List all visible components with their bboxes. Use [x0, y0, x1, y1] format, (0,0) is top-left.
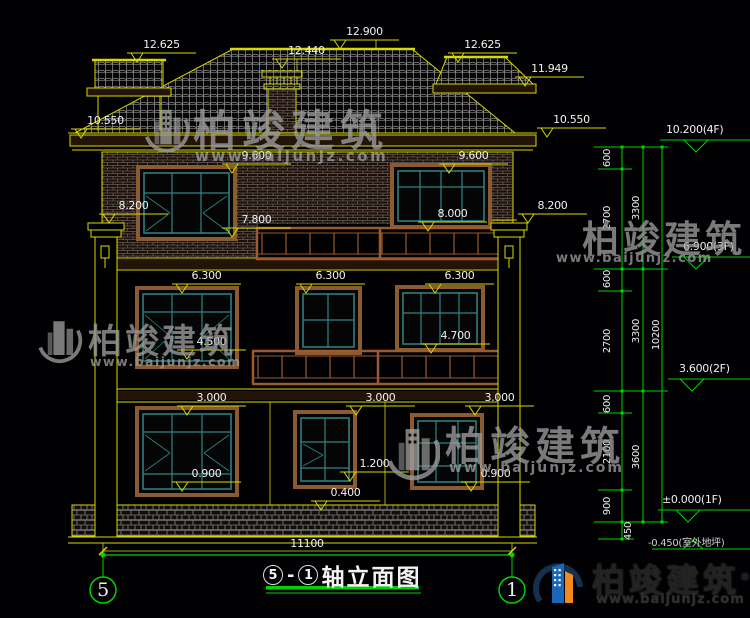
dim-text: 3600 — [631, 429, 643, 485]
title-axis-start: 5 — [263, 565, 283, 585]
title-dash: - — [287, 565, 294, 586]
dim-text: 600 — [602, 130, 614, 186]
title-axis-end: 1 — [298, 565, 318, 585]
elevation-flag: 8.000 — [418, 207, 487, 220]
elevation-flag: 6.300 — [296, 269, 365, 282]
watermark-url: www.baijunjz.com — [449, 460, 624, 476]
watermark: 柏竣建筑 www.baijunjz.com — [548, 205, 750, 267]
dim-text: 3300 — [631, 303, 643, 359]
overall-width-dim: 11100 — [277, 537, 337, 550]
elevation-flag: 4.700 — [421, 329, 490, 342]
elevation-flag: 7.800 — [222, 213, 291, 226]
watermark-logo-icon — [385, 412, 440, 492]
elevation-flag: 11.949 — [515, 62, 584, 75]
elevation-flag: 0.900 — [172, 467, 241, 480]
watermark: 柏竣建筑 www.baijunjz.com — [143, 95, 403, 170]
cad-elevation-drawing: 12.625 12.900 12.440 12.625 11.949 10.55… — [0, 0, 750, 618]
registered-mark: ® — [740, 572, 750, 583]
elevation-flag: 3.000 — [177, 391, 246, 404]
dim-text-overall: 10200 — [651, 307, 663, 363]
floor-marker-1f: ±0.000(1F) — [662, 493, 722, 506]
elevation-flag: 10.550 — [71, 114, 140, 127]
brand-logo-icon — [532, 556, 588, 614]
elevation-flag: 6.300 — [172, 269, 241, 282]
floor-marker-2f: 3.600(2F) — [679, 362, 730, 375]
watermark-logo-icon — [35, 310, 83, 370]
watermark-url: www.baijunjz.com — [556, 251, 713, 266]
elevation-flag: 12.625 — [448, 38, 517, 51]
elevation-flag: 6.300 — [425, 269, 494, 282]
axis-bubble-5: 5 — [89, 579, 117, 601]
watermark: 柏竣建筑 www.baijunjz.com — [35, 308, 245, 372]
floor-marker-4f: 10.200(4F) — [666, 123, 723, 136]
elevation-flag: 8.200 — [99, 199, 168, 212]
elevation-flag: 3.000 — [465, 391, 534, 404]
elevation-flag: 12.625 — [127, 38, 196, 51]
drawing-title: 5-1轴立面图 — [263, 558, 421, 592]
brand-logo-url: www.baijunjz.com — [596, 592, 745, 607]
dim-text: 450 — [623, 503, 635, 559]
elevation-flag: 3.000 — [346, 391, 415, 404]
title-text: 轴立面图 — [321, 558, 421, 592]
watermark: 柏竣建筑 www.baijunjz.com — [385, 410, 625, 490]
watermark-logo-icon — [143, 97, 189, 161]
elevation-flag: 9.600 — [439, 149, 508, 162]
elevation-flag: 10.550 — [537, 113, 606, 126]
brand-logo: 柏竣建筑® www.baijunjz.com — [530, 554, 750, 618]
watermark-url: www.baijunjz.com — [90, 354, 242, 369]
elevation-flag: 0.400 — [311, 486, 380, 499]
elevation-flag: 12.440 — [272, 44, 341, 57]
elevation-flag: 12.900 — [330, 25, 399, 38]
dim-text: 2700 — [602, 313, 614, 369]
axis-bubble-1: 1 — [498, 579, 526, 601]
floor-marker-ground: -0.450(室外地坪) — [648, 534, 724, 549]
watermark-url: www.baijunjz.com — [195, 147, 388, 165]
